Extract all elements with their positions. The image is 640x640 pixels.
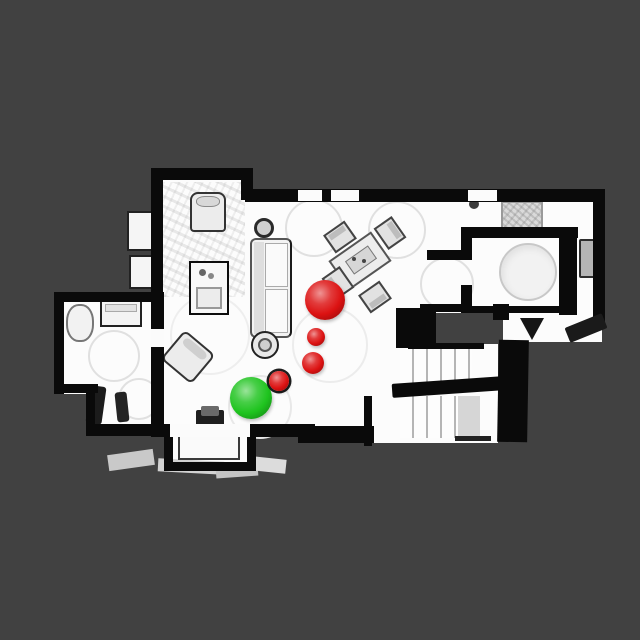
waypoint-marker-4[interactable] <box>269 371 289 391</box>
scene-viewport[interactable] <box>0 0 640 640</box>
marker-layer <box>0 0 640 640</box>
goal-marker[interactable] <box>230 377 272 419</box>
waypoint-marker-3[interactable] <box>302 352 324 374</box>
waypoint-marker-2[interactable] <box>307 328 325 346</box>
waypoint-marker-1[interactable] <box>305 280 345 320</box>
